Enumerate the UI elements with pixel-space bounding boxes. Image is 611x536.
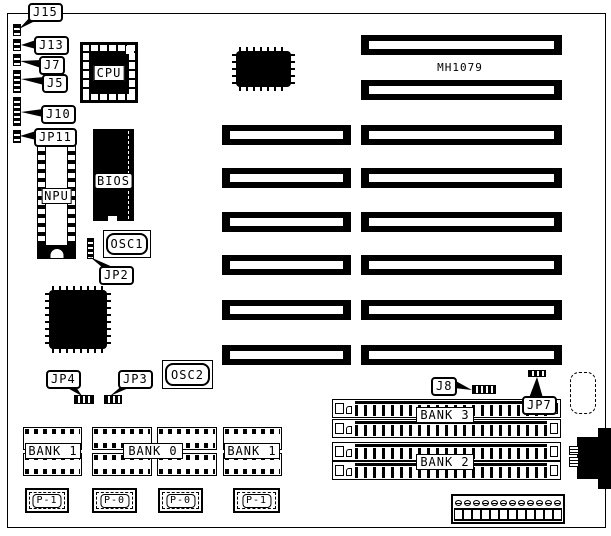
isa-slot-7-extension [222,300,351,320]
jumper-block-jp3 [104,395,122,404]
motherboard-diagram: J15 J13 J7 J5 J10 JP11 JP2 JP4 JP3 J8 JP… [0,0,611,536]
jumper-block-jp4 [74,395,94,404]
keyboard-connector-pin-block [569,457,579,467]
callout-j15: J15 [28,3,63,22]
power-pin [473,500,480,506]
jumper-block-jp11 [13,130,21,143]
isa-slot-8 [361,345,562,365]
connector-p0-right: P-0 [158,488,203,513]
connector-p1-right: P-1 [233,488,280,513]
simm-endcap [335,446,344,457]
isa-slot-4 [361,168,562,188]
jumper-block-j5 [13,70,21,93]
power-pin [491,510,498,519]
callout-jp11: JP11 [34,128,77,147]
jumper-block-j13 [13,39,21,51]
power-pin [473,510,480,519]
power-pin [536,510,543,519]
power-connector [451,494,565,524]
simm-edge [355,444,547,447]
power-pin [464,510,471,519]
p1-left-label: P-1 [32,494,61,508]
isa-slot-1 [361,35,562,55]
callout-jp2: JP2 [99,266,134,285]
power-pin [482,500,489,506]
npu-notch [50,249,63,258]
isa-slot-2 [361,80,562,100]
simm-endcap [550,446,558,457]
isa-slot-6-extension [222,255,351,275]
simm-endcap [335,423,344,434]
bank2-label: BANK 2 [416,454,474,470]
jumper-block-j7 [13,54,21,66]
power-pin [554,510,561,519]
board-model-text: MH1079 [430,61,490,74]
simm-endcap [550,423,558,434]
bank0-label: BANK 0 [123,443,183,459]
callout-j7: J7 [39,56,65,75]
cpu-corner-notch [126,46,134,54]
callout-j13: J13 [34,36,69,55]
power-pin [527,500,534,506]
power-pin [518,510,525,519]
power-pin [509,500,516,506]
connector-p0-left: P-0 [92,488,137,513]
isa-slot-3-extension [222,125,351,145]
power-pin [500,510,507,519]
bios-chip: BIOS [93,129,134,221]
callout-jp4: JP4 [46,370,81,389]
p0-right-label: P-0 [166,494,195,508]
power-pin [464,500,471,506]
power-pin [455,500,462,506]
bank1-right-label: BANK 1 [224,443,280,459]
simm-latch [346,449,352,457]
simm-latch [346,426,352,434]
p1-right-label: P-1 [242,494,271,508]
cpu-pins-right [128,51,135,94]
oscillator-osc2: OSC2 [162,360,213,389]
cpu-pins-bottom [89,93,129,100]
keyboard-connector-pin-block [569,446,579,455]
keyboard-connector-flange [598,428,611,489]
power-pin [500,500,507,506]
npu-label: NPU [41,188,72,204]
simm-endcap [550,465,558,476]
callout-j10: J10 [41,105,76,124]
qfp-body [49,290,107,349]
simm-latch [346,468,352,476]
power-pin [554,500,561,506]
bank3-label: BANK 3 [416,407,474,423]
din-connector-outline [570,372,596,414]
jumper-block-j10 [13,97,21,126]
osc1-label: OSC1 [106,233,148,255]
power-pin-row-bottom [454,508,562,521]
bank1-left-label: BANK 1 [25,443,81,459]
isa-slot-6 [361,255,562,275]
jumper-block-jp7 [528,370,546,377]
simm-pins [355,425,547,436]
bios-notch [108,216,117,221]
npu-socket: NPU [37,135,76,259]
isa-slot-4-extension [222,168,351,188]
oscillator-osc1: OSC1 [103,230,151,258]
simm-endcap [335,403,344,414]
simm-endcap [335,465,344,476]
power-pin [527,510,534,519]
power-pin [455,510,462,519]
isa-slot-5 [361,212,562,232]
bios-label: BIOS [94,173,133,189]
simm-latch [346,406,352,414]
simm-edge [355,401,547,404]
callout-j8: J8 [431,377,457,396]
keyboard-connector [577,437,600,479]
isa-slot-7 [361,300,562,320]
callout-jp7: JP7 [522,396,557,415]
jumper-block-j15 [13,24,21,36]
power-pin [482,510,489,519]
power-pin [518,500,525,506]
isa-slot-8-extension [222,345,351,365]
cpu-label: CPU [94,65,125,81]
connector-p1-left: P-1 [25,488,69,513]
qfp-chip-bottom-left [45,286,111,353]
isa-slot-5-extension [222,212,351,232]
qfp-body [236,51,291,87]
power-pin [509,510,516,519]
osc2-label: OSC2 [165,363,210,386]
jumper-block-j8 [472,385,496,394]
cpu-socket: CPU [80,42,138,103]
jumper-block-jp2 [87,238,94,259]
p0-left-label: P-0 [100,494,129,508]
isa-slot-3 [361,125,562,145]
power-pin [491,500,498,506]
qfp-chip-top [232,47,295,91]
callout-jp3: JP3 [118,370,153,389]
callout-j5: J5 [42,74,68,93]
power-pin [545,510,552,519]
power-pin [545,500,552,506]
power-pin [536,500,543,506]
